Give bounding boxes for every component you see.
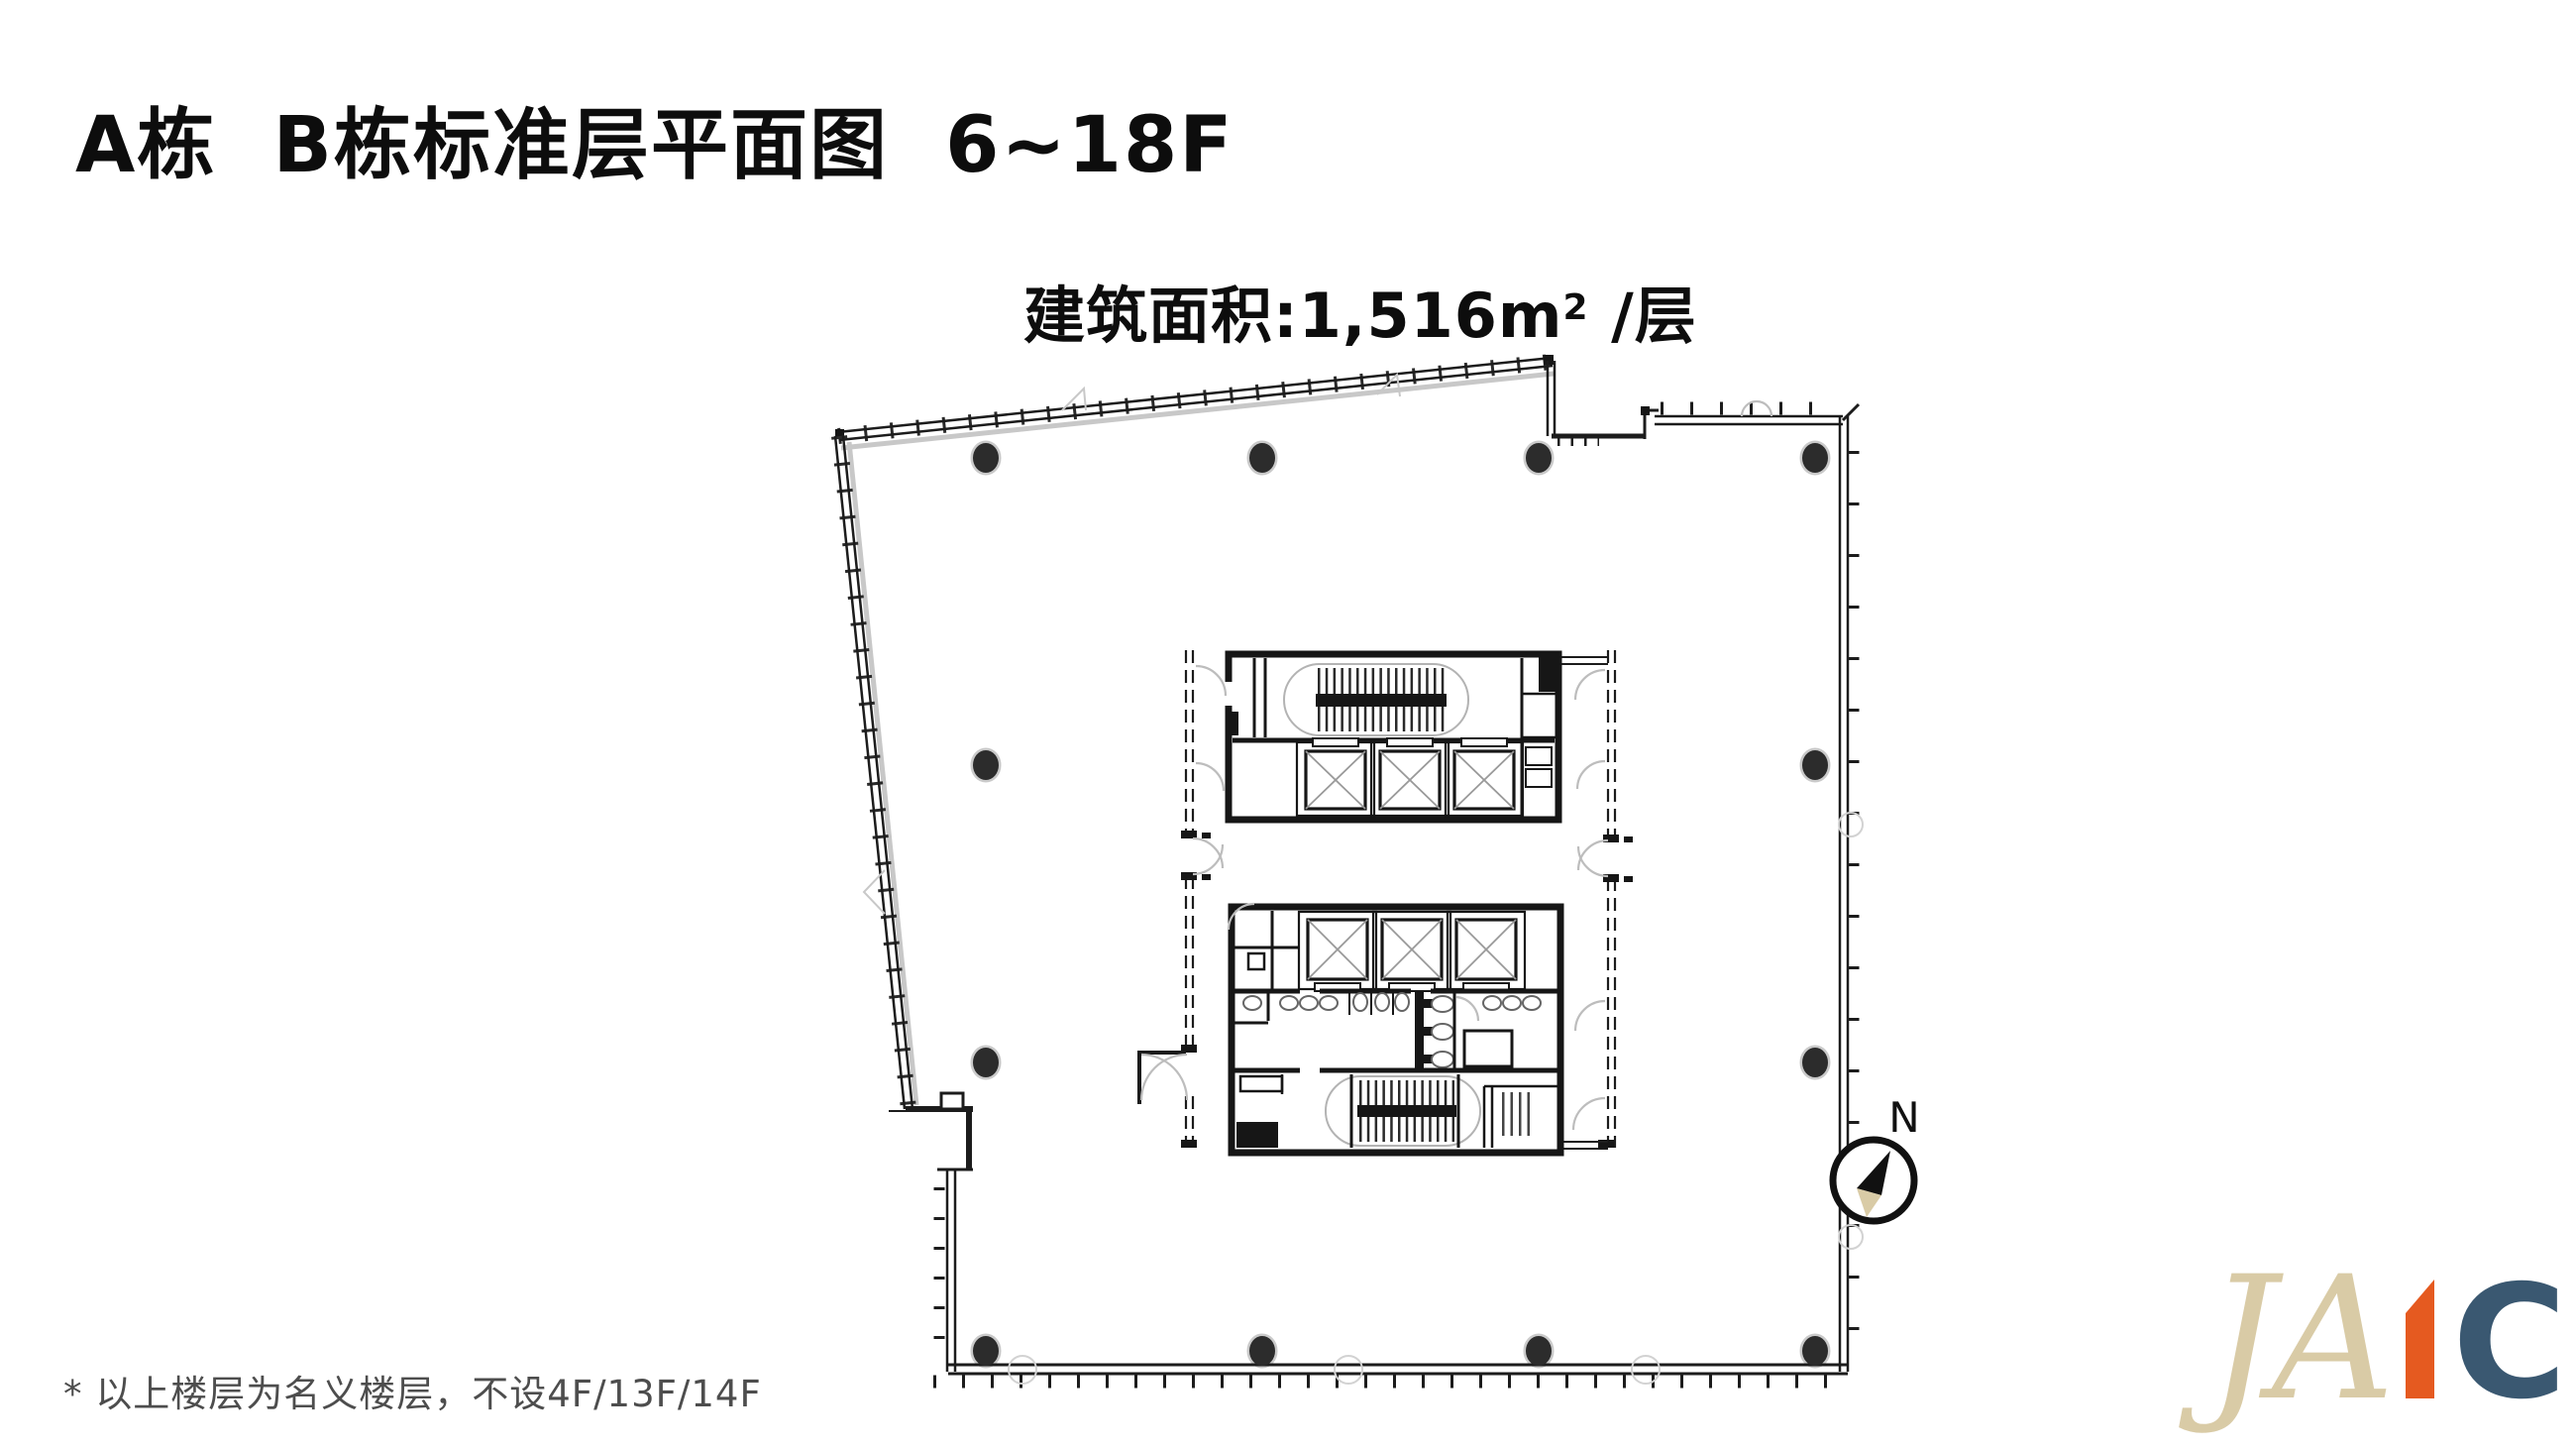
logo-ja: JA xyxy=(2179,1239,2391,1438)
logo-c: C xyxy=(2452,1252,2567,1434)
bottom-wall xyxy=(933,1365,1851,1382)
north-label: N xyxy=(1888,1093,1919,1142)
bottom-left-jog xyxy=(889,1093,973,1372)
upper-core xyxy=(1225,654,1558,820)
top-wall xyxy=(835,355,1554,448)
floor-plan: N JA C xyxy=(0,0,2576,1449)
wc-fixtures xyxy=(1424,996,1453,1067)
north-compass: N xyxy=(1833,1093,1920,1221)
outer-walls xyxy=(835,355,1859,1382)
urinal-fixtures xyxy=(1353,993,1409,1011)
logo-accent-bar xyxy=(2406,1280,2434,1398)
jaic-logo: JA C xyxy=(2179,1239,2567,1438)
lower-core xyxy=(1232,907,1560,1153)
left-wall xyxy=(835,436,916,1109)
top-right-step xyxy=(1548,361,1859,442)
facade-faint-marks xyxy=(864,375,1863,1384)
